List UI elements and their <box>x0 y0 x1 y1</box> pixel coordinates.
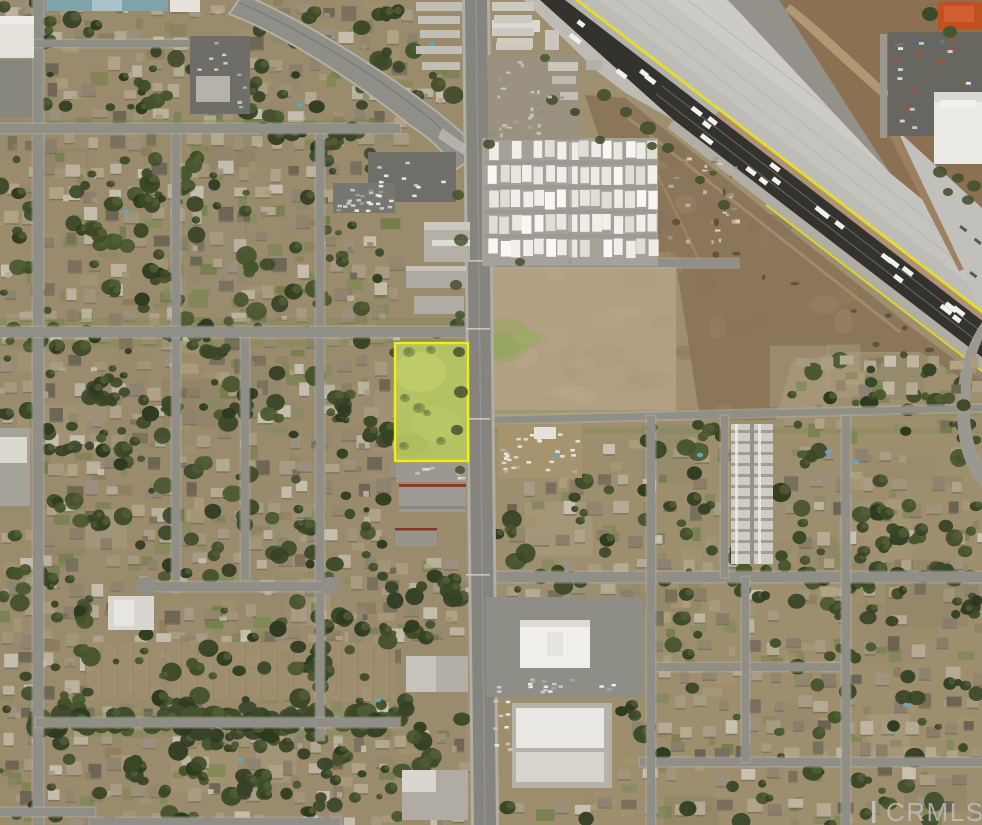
svg-text:CRMLS: CRMLS <box>886 797 982 825</box>
